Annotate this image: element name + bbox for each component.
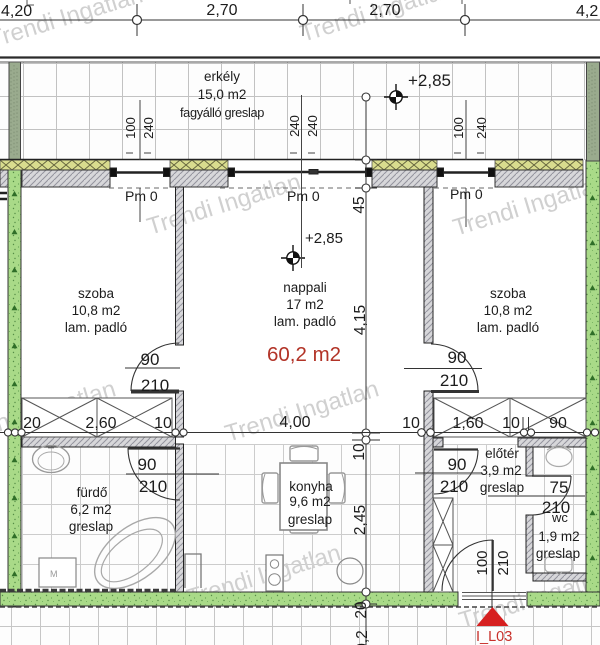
svg-text:Pm 0: Pm 0 (125, 188, 158, 204)
svg-text:240: 240 (474, 117, 489, 139)
svg-text:210: 210 (440, 477, 468, 496)
svg-text:210: 210 (139, 477, 167, 496)
svg-text:10: 10 (154, 415, 172, 432)
svg-text:75: 75 (550, 478, 569, 497)
svg-text:lam. padló: lam. padló (274, 314, 336, 329)
svg-text:greslap: greslap (480, 480, 524, 495)
svg-text:fagyálló greslap: fagyálló greslap (180, 105, 264, 120)
svg-text:szoba: szoba (78, 286, 115, 301)
svg-text:4,20: 4,20 (1, 3, 32, 20)
svg-text:10: 10 (402, 415, 420, 432)
svg-text:lam. padló: lam. padló (477, 320, 539, 335)
svg-text:2,70: 2,70 (206, 2, 237, 19)
svg-text:4,00: 4,00 (279, 414, 310, 431)
svg-text:90: 90 (448, 455, 467, 474)
svg-text:2,45: 2,45 (352, 505, 369, 535)
svg-text:greslap: greslap (69, 519, 113, 534)
svg-text:+2,85: +2,85 (305, 230, 343, 247)
svg-text:fürdő: fürdő (77, 485, 108, 500)
svg-text:I_L03: I_L03 (476, 629, 512, 645)
svg-text:240: 240 (287, 115, 302, 137)
svg-text:90: 90 (138, 455, 157, 474)
svg-text:90: 90 (141, 350, 160, 369)
svg-text:konyha: konyha (289, 479, 333, 494)
svg-text:100: 100 (451, 117, 466, 139)
svg-text:210: 210 (440, 371, 468, 390)
svg-text:45: 45 (351, 196, 368, 213)
svg-text:100: 100 (474, 550, 491, 575)
svg-text:nappali: nappali (283, 280, 327, 295)
svg-text:1,60: 1,60 (452, 415, 483, 432)
svg-text:Pm 0: Pm 0 (287, 188, 320, 204)
svg-text:előtér: előtér (485, 446, 519, 461)
svg-text:20: 20 (23, 415, 41, 432)
svg-text:4,15: 4,15 (352, 305, 369, 335)
svg-text:240: 240 (305, 115, 320, 137)
svg-text:9,6 m2: 9,6 m2 (289, 494, 330, 509)
svg-text:17 m2: 17 m2 (286, 297, 324, 312)
svg-text:6,2 m2: 6,2 m2 (70, 502, 111, 517)
svg-text:+2,85: +2,85 (408, 71, 451, 90)
svg-text:lam. padló: lam. padló (65, 320, 127, 335)
svg-text:szoba: szoba (490, 286, 527, 301)
svg-text:2,60: 2,60 (85, 415, 116, 432)
svg-text:4,2: 4,2 (576, 3, 598, 20)
svg-text:Pm 0: Pm 0 (450, 186, 483, 202)
svg-text:90: 90 (549, 415, 567, 432)
svg-text:0,2: 0,2 (354, 630, 371, 645)
svg-text:10: 10 (502, 415, 520, 432)
svg-text:3,9 m2: 3,9 m2 (480, 463, 521, 478)
svg-text:greslap: greslap (288, 512, 332, 527)
svg-text:20: 20 (353, 601, 370, 619)
svg-text:240: 240 (141, 117, 156, 139)
svg-text:wc: wc (551, 510, 568, 525)
svg-text:210: 210 (141, 376, 169, 395)
svg-text:100: 100 (123, 117, 138, 139)
svg-text:10,8 m2: 10,8 m2 (72, 303, 121, 318)
svg-text:210: 210 (495, 550, 512, 575)
svg-text:M: M (50, 569, 58, 579)
svg-text:1,9 m2: 1,9 m2 (538, 529, 579, 544)
svg-text:10,8 m2: 10,8 m2 (484, 303, 533, 318)
svg-text:10: 10 (351, 443, 368, 461)
svg-text:erkély: erkély (204, 69, 240, 84)
svg-text:60,2 m2: 60,2 m2 (267, 343, 341, 366)
svg-text:2,70: 2,70 (369, 2, 400, 19)
svg-text:90: 90 (448, 348, 467, 367)
svg-text:greslap: greslap (536, 546, 580, 561)
svg-text:15,0 m2: 15,0 m2 (198, 87, 247, 102)
